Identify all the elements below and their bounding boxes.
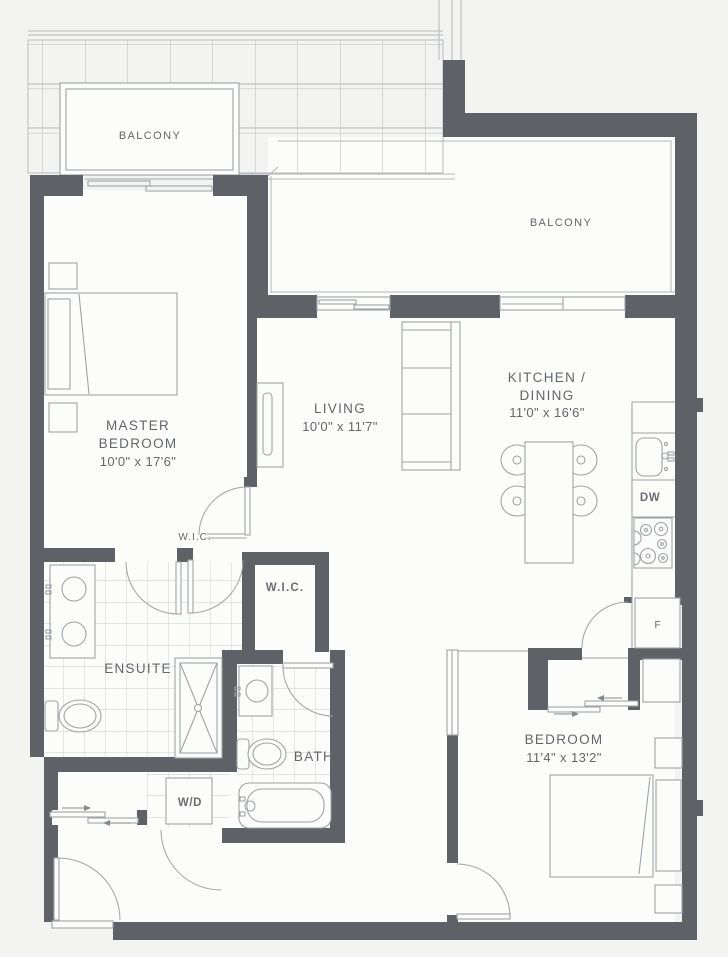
washer-dryer-label: W/D: [178, 797, 202, 809]
balcony-right-label: BALCONY: [530, 217, 592, 229]
bathtub: [239, 783, 331, 828]
wall-segment: [242, 552, 255, 652]
wall-segment: [528, 648, 582, 660]
kitchen-name-2: DINING: [519, 388, 574, 403]
master-dims: 10'0" x 17'6": [100, 454, 177, 469]
toilet: [237, 739, 286, 769]
nightstand: [655, 885, 682, 913]
living-name: LIVING: [314, 401, 366, 416]
floor-plan: BALCONY BALCONY: [0, 0, 728, 957]
bed: [550, 775, 681, 877]
toilet: [45, 700, 101, 732]
slider-panel: [548, 707, 600, 712]
fridge-label: F: [654, 620, 661, 631]
dishwasher-label: DW: [640, 492, 660, 504]
wall-segment: [44, 757, 230, 772]
master-name-1: MASTER: [106, 418, 170, 433]
wall-segment: [222, 650, 237, 772]
wall-segment: [113, 922, 697, 940]
wall-segment: [628, 648, 683, 660]
nightstand: [49, 403, 77, 432]
kitchen-name-1: KITCHEN /: [508, 370, 586, 385]
wall-segment: [30, 175, 83, 196]
stove: [634, 518, 672, 568]
nightstand: [49, 263, 77, 289]
wall-segment: [247, 295, 317, 318]
wall-segment: [443, 60, 465, 137]
entry-threshold: [52, 921, 113, 928]
wall-segment: [390, 295, 500, 318]
wall-segment: [244, 477, 257, 487]
wall-segment: [447, 915, 458, 925]
kitchen-dims: 11'0" x 16'6": [509, 405, 585, 420]
wall-segment: [465, 113, 697, 137]
wall-segment: [247, 180, 268, 296]
wall-segment: [682, 605, 697, 930]
tv-cabinet: [257, 383, 283, 467]
wall-segment: [447, 735, 458, 863]
wall-segment: [697, 800, 703, 816]
wic-room-label: W.I.C.: [266, 582, 305, 594]
slider-panel: [585, 701, 638, 706]
wall-segment: [625, 295, 675, 318]
bath-vanity: [235, 666, 272, 716]
wall-segment: [315, 552, 329, 652]
slider-panel: [50, 812, 105, 817]
bath-label: BATH: [294, 749, 334, 764]
double-vanity: [46, 565, 95, 658]
wall-segment: [30, 548, 115, 562]
bed: [45, 293, 177, 395]
ensuite-label: ENSUITE: [104, 661, 172, 676]
shower: [175, 658, 222, 758]
wall-segment: [528, 660, 548, 710]
balcony-left-label: BALCONY: [119, 130, 181, 142]
balcony-top-left: BALCONY: [60, 83, 239, 175]
bedroom-dims: 11'4" x 13'2": [526, 750, 602, 765]
sofa: [402, 322, 460, 470]
nightstand: [655, 738, 682, 768]
wall-segment: [330, 650, 345, 843]
linen-closet: [643, 659, 680, 702]
wic-hall-label: W.I.C.: [178, 532, 211, 543]
wall-segment: [44, 757, 58, 810]
dining-table: [525, 442, 573, 563]
laundry: W/D: [166, 778, 212, 824]
wall-segment: [247, 296, 257, 486]
wall-segment: [30, 175, 44, 757]
bedroom-name: BEDROOM: [525, 732, 604, 747]
slider-panel: [88, 818, 138, 823]
fridge: F: [632, 598, 680, 648]
master-name-2: BEDROOM: [99, 436, 178, 451]
wall-segment: [675, 113, 697, 605]
wall-segment: [222, 828, 345, 843]
floor-plan-drawing: BALCONY BALCONY: [0, 0, 728, 957]
wall-segment: [697, 398, 703, 412]
living-dims: 10'0" x 11'7": [302, 419, 378, 434]
